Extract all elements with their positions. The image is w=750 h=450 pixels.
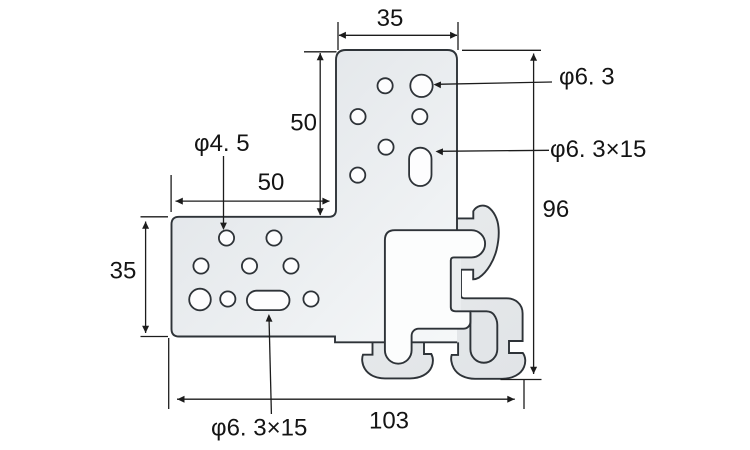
svg-text:96: 96 (543, 196, 570, 223)
svg-text:35: 35 (110, 258, 137, 285)
svg-text:φ6. 3×15: φ6. 3×15 (211, 415, 307, 442)
svg-text:50: 50 (290, 110, 317, 137)
svg-text:φ6. 3×15: φ6. 3×15 (550, 136, 646, 163)
svg-text:φ4. 5: φ4. 5 (194, 130, 250, 157)
svg-text:103: 103 (369, 408, 409, 435)
svg-text:φ6. 3: φ6. 3 (559, 64, 615, 91)
svg-text:50: 50 (258, 169, 285, 196)
svg-text:35: 35 (377, 5, 404, 32)
